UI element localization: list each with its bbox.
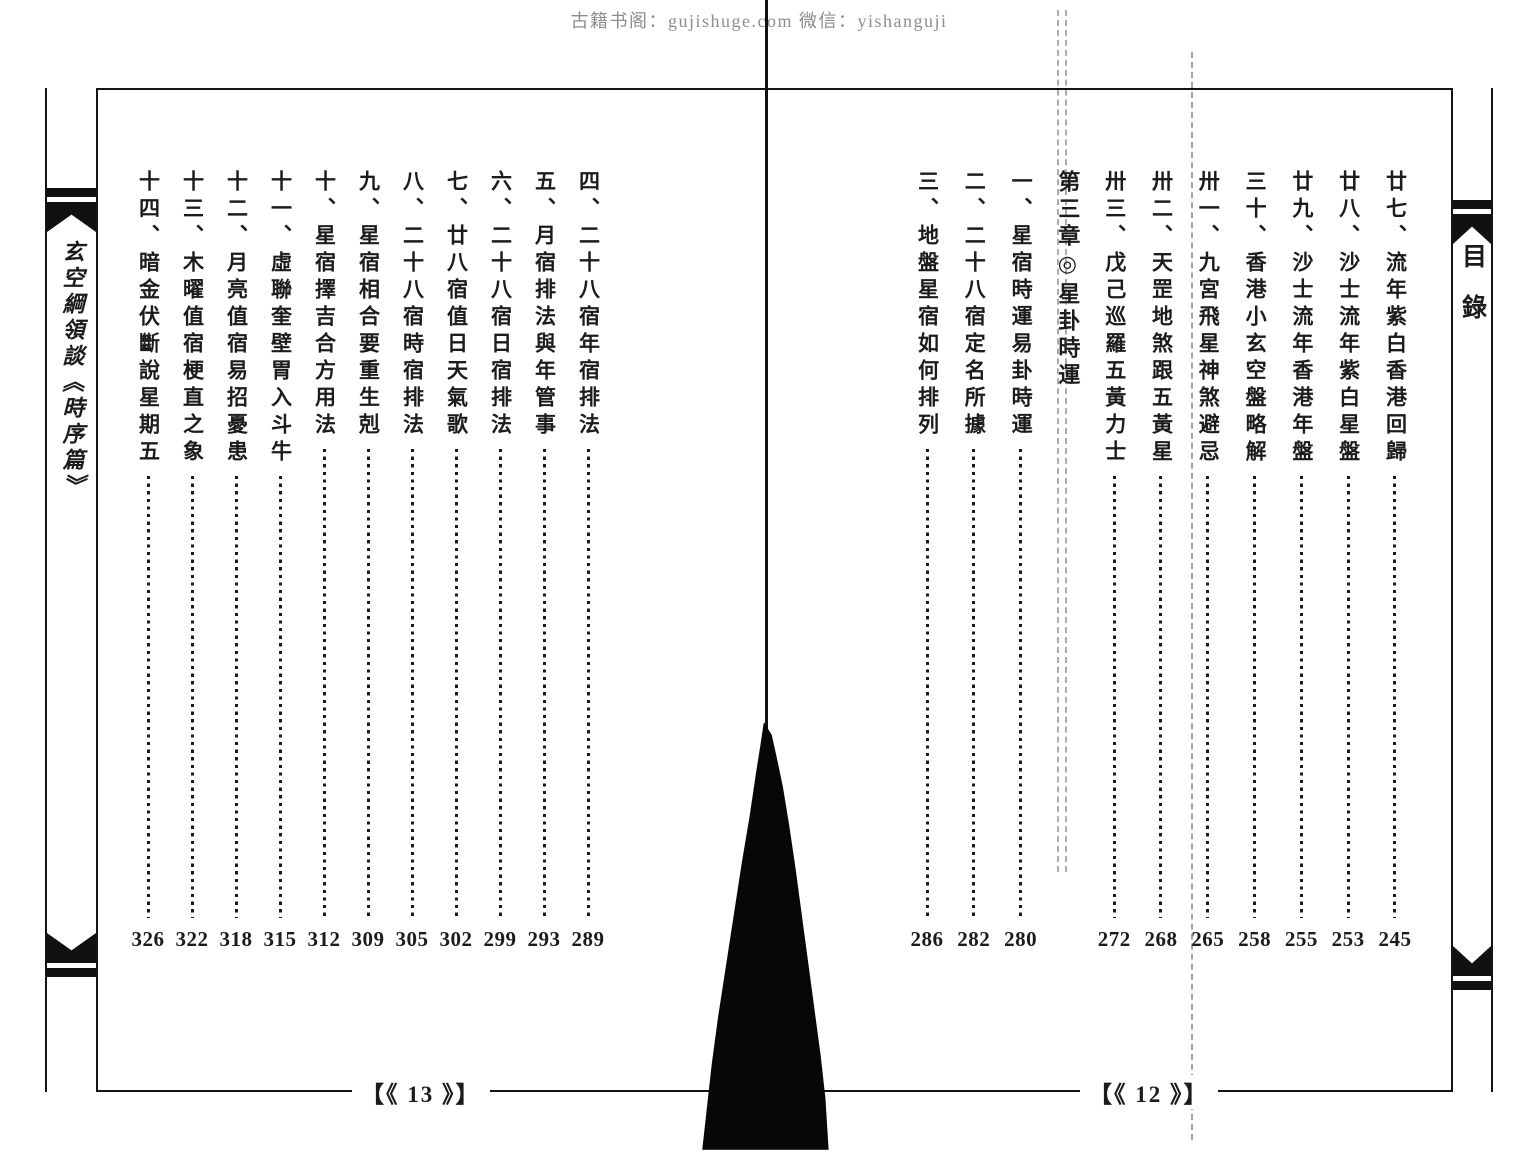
dotted-leader [926, 449, 929, 918]
toc-page-number: 302 [440, 924, 473, 952]
toc-entry-title: 卅二、天罡地煞跟五黃星 [1150, 170, 1171, 467]
toc-entry: 十三、木曜值宿梗直之象 322 [170, 170, 214, 952]
toc-entry-title: 二、二十八宿定名所據 [963, 170, 984, 440]
dotted-leader [279, 476, 282, 918]
toc-entry-title: 廿九、沙士流年香港年盤 [1291, 170, 1312, 467]
toc-entry: 七、廿八宿值日天氣歌 302 [434, 170, 478, 952]
dotted-leader [1253, 476, 1256, 918]
toc-entry: 八、二十八宿時宿排法 305 [390, 170, 434, 952]
toc-entry: 十二、月亮值宿易招憂患 318 [214, 170, 258, 952]
toc-page-number: 312 [308, 924, 341, 952]
toc-entry: 九、星宿相合要重生剋 309 [346, 170, 390, 952]
toc-entry: 廿九、沙士流年香港年盤 255 [1279, 170, 1323, 952]
toc-page-number: 299 [484, 924, 517, 952]
toc-entry: 卅二、天罡地煞跟五黃星 268 [1139, 170, 1183, 952]
toc-entry: 三十、香港小玄空盤略解 258 [1233, 170, 1277, 952]
toc-entry-title: 十二、月亮值宿易招憂患 [226, 170, 247, 467]
dotted-leader [1393, 476, 1396, 918]
toc-page-number: 280 [1004, 924, 1037, 952]
toc-entry-title: 十、星宿擇吉合方用法 [314, 170, 335, 440]
right-spine: 目錄 [1451, 88, 1493, 1092]
toc-entry-title: 十三、木曜值宿梗直之象 [182, 170, 203, 467]
fold-crease-line [1057, 10, 1067, 872]
toc-page-number: 286 [911, 924, 944, 952]
toc-entry: 二、二十八宿定名所據 282 [952, 170, 996, 952]
toc-entry: 三、地盤星宿如何排列 286 [905, 170, 949, 952]
toc-entry: 十一、虛聯奎壁胃入斗牛 315 [258, 170, 302, 952]
toc-page-number: 293 [528, 924, 561, 952]
dotted-leader [1159, 476, 1162, 918]
dotted-leader [235, 476, 238, 918]
watermark-text: 古籍书阁：gujishuge.com 微信：yishanguji [571, 7, 948, 33]
toc-page-number: 245 [1378, 924, 1411, 952]
toc-entry-title: 六、二十八宿日宿排法 [490, 170, 511, 440]
toc-entry: 卅三、戊己巡羅五黃力士 272 [1092, 170, 1136, 952]
toc-entry-title: 五、月宿排法與年管事 [534, 170, 555, 440]
dotted-leader [1113, 476, 1116, 918]
toc-right-page: 廿七、流年紫白香港回歸 245 廿八、沙士流年紫白星盤 253 廿九、沙士流年香… [905, 170, 1417, 952]
ribbon-banner-icon [47, 933, 96, 977]
fold-crease-line [1191, 52, 1193, 1140]
dotted-leader [587, 449, 590, 918]
toc-entry-title: 十一、虛聯奎壁胃入斗牛 [270, 170, 291, 467]
toc-entry-title: 九、星宿相合要重生剋 [358, 170, 379, 440]
toc-entry: 廿七、流年紫白香港回歸 245 [1373, 170, 1417, 952]
toc-entry-title: 三、地盤星宿如何排列 [917, 170, 938, 440]
dotted-leader [367, 449, 370, 918]
toc-page-number: 255 [1285, 924, 1318, 952]
dotted-leader [543, 449, 546, 918]
toc-entry-title: 三十、香港小玄空盤略解 [1244, 170, 1265, 467]
toc-entry: 十、星宿擇吉合方用法 312 [302, 170, 346, 952]
toc-entry-title: 廿八、沙士流年紫白星盤 [1338, 170, 1359, 467]
toc-page-number: 315 [264, 924, 297, 952]
toc-chapter-heading: 第三章◎星卦時運 [1045, 170, 1089, 952]
toc-page-number: 258 [1238, 924, 1271, 952]
toc-left-page: 四、二十八宿年宿排法 289 五、月宿排法與年管事 293 六、二十八宿日宿排法… [126, 170, 610, 952]
toc-entry-title: 一、星宿時運易卦時運 [1010, 170, 1031, 440]
toc-page-number: 322 [176, 924, 209, 952]
toc-page-number: 318 [220, 924, 253, 952]
dotted-leader [972, 449, 975, 918]
toc-entry-title: 廿七、流年紫白香港回歸 [1384, 170, 1405, 467]
dotted-leader [411, 449, 414, 918]
toc-entry: 廿八、沙士流年紫白星盤 253 [1326, 170, 1370, 952]
dotted-leader [147, 476, 150, 918]
toc-entry-title: 卅三、戊己巡羅五黃力士 [1104, 170, 1125, 467]
toc-page-number: 272 [1098, 924, 1131, 952]
toc-entry-title: 四、二十八宿年宿排法 [578, 170, 599, 440]
toc-entry: 五、月宿排法與年管事 293 [522, 170, 566, 952]
toc-page-number: 309 [352, 924, 385, 952]
right-page-footer: 【《 12 》】 [1080, 1075, 1218, 1109]
scanned-book-spread: 古籍书阁：gujishuge.com 微信：yishanguji 玄空綱領談《時… [0, 0, 1518, 1169]
toc-page-number: 305 [396, 924, 429, 952]
toc-entry: 六、二十八宿日宿排法 299 [478, 170, 522, 952]
gutter-crease-line [765, 0, 768, 745]
dotted-leader [1206, 476, 1209, 918]
dotted-leader [455, 449, 458, 918]
left-spine: 玄空綱領談《時序篇》 [45, 88, 98, 1092]
dotted-leader [1019, 449, 1022, 918]
toc-page-number: 326 [132, 924, 165, 952]
dotted-leader [1300, 476, 1303, 918]
dotted-leader [191, 476, 194, 918]
dotted-leader [323, 449, 326, 918]
book-title: 玄空綱領談《時序篇》 [61, 240, 83, 500]
ribbon-banner-icon [47, 188, 96, 232]
toc-page-number: 268 [1144, 924, 1177, 952]
section-label: 目錄 [1460, 243, 1485, 345]
toc-page-number: 289 [572, 924, 605, 952]
dotted-leader [499, 449, 502, 918]
toc-page-number: 253 [1332, 924, 1365, 952]
toc-entry-title: 七、廿八宿值日天氣歌 [446, 170, 467, 440]
left-page-footer: 【《 13 》】 [352, 1075, 490, 1109]
dotted-leader [1347, 476, 1350, 918]
toc-page-number: 265 [1191, 924, 1224, 952]
toc-entry-title: 十四、暗金伏斷說星期五 [138, 170, 159, 467]
toc-entry: 十四、暗金伏斷說星期五 326 [126, 170, 170, 952]
toc-page-number: 282 [957, 924, 990, 952]
ribbon-banner-icon [1453, 946, 1491, 990]
ribbon-banner-icon [1453, 200, 1491, 244]
toc-entry-title: 卅一、九宮飛星神煞避忌 [1197, 170, 1218, 467]
toc-entry: 一、星宿時運易卦時運 280 [999, 170, 1043, 952]
toc-entry-title: 八、二十八宿時宿排法 [402, 170, 423, 440]
toc-entry: 四、二十八宿年宿排法 289 [566, 170, 610, 952]
